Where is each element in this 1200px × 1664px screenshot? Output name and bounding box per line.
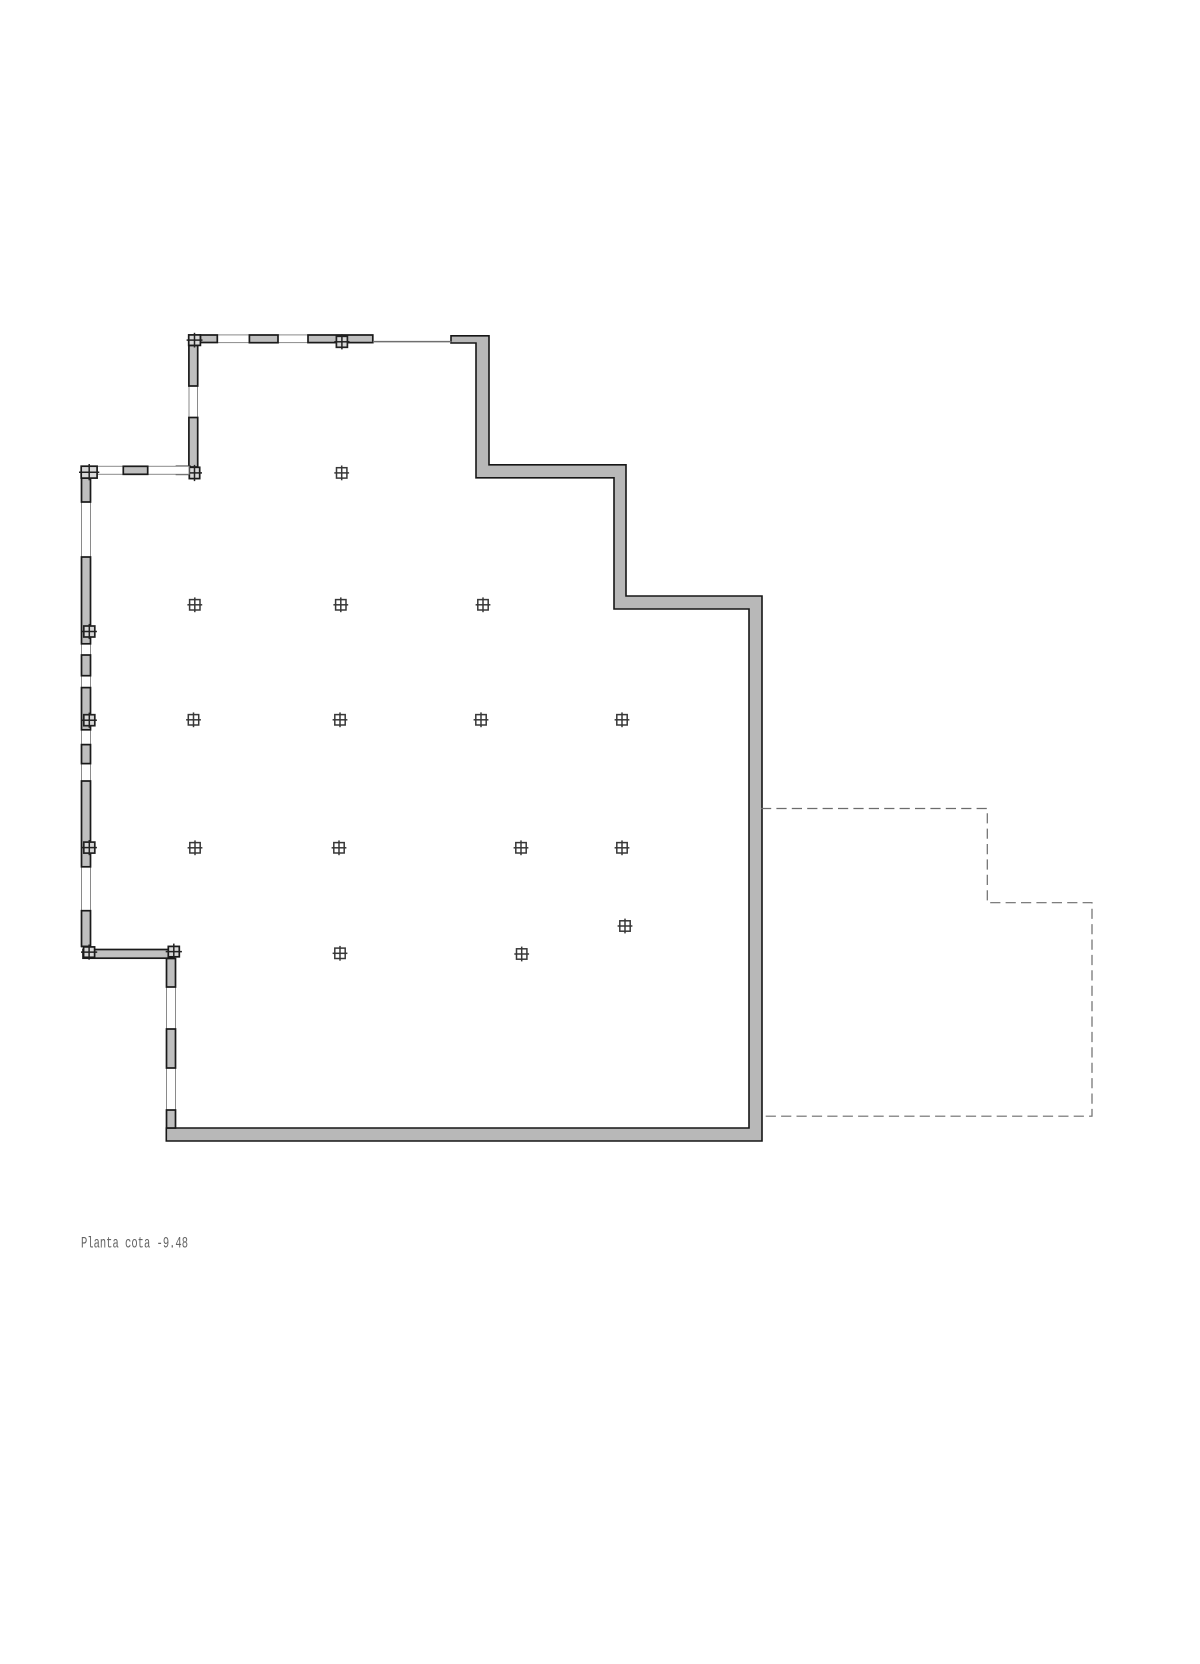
svg-text:Planta cota -9.48: Planta cota -9.48 bbox=[81, 1235, 188, 1253]
